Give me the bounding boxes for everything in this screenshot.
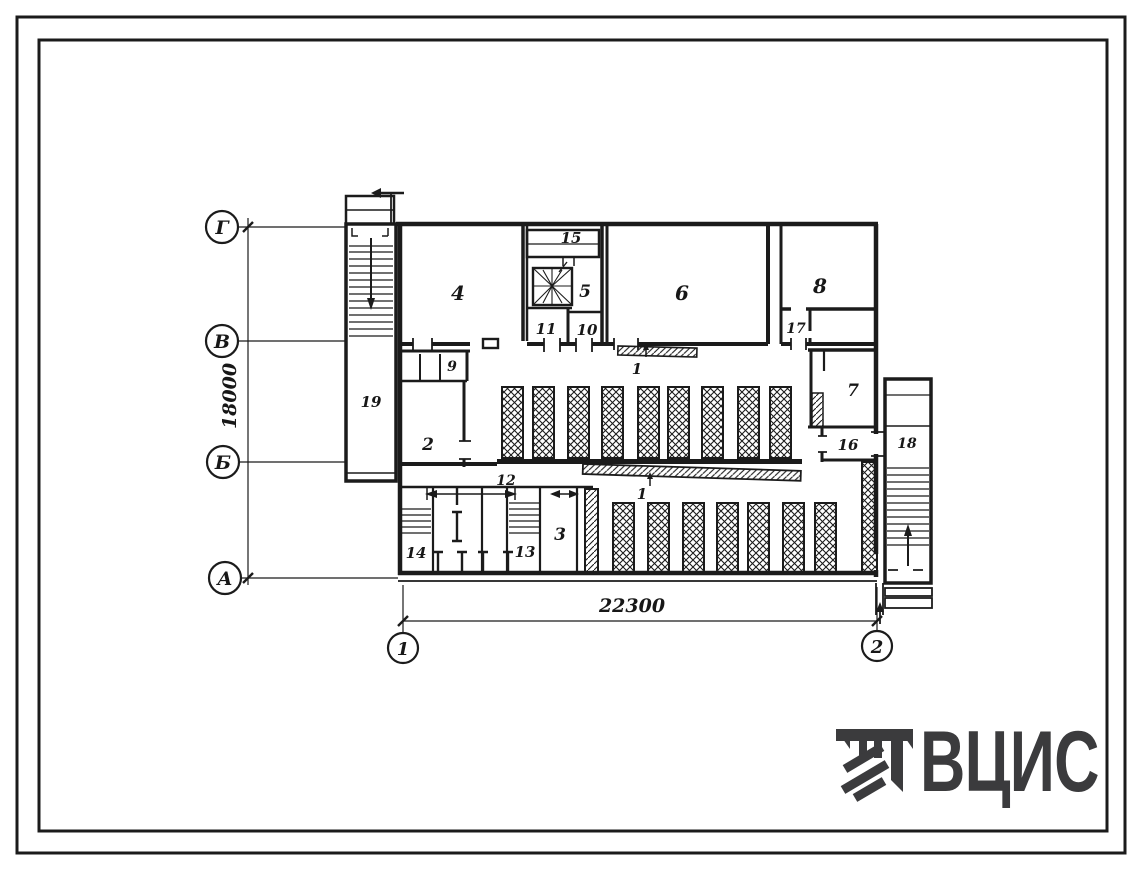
room-label-8: 8	[812, 274, 827, 298]
staircase-18	[876, 379, 932, 624]
dimension-horizontal: 22300	[598, 595, 665, 617]
issue-counter-small	[618, 346, 697, 357]
tall-rack-right	[862, 462, 877, 572]
axis-row-label-a: А	[215, 568, 232, 590]
vcis-logo-text: ВЦИС	[920, 713, 1099, 809]
staircase-19	[346, 188, 404, 481]
dimension-vertical: 18000	[219, 363, 241, 429]
room-label-19: 19	[361, 393, 382, 411]
floor-plan-drawing: Г В Б А 1 2 18000 22300 4 6 8 15 5 11 10…	[0, 0, 1139, 869]
room-label-6: 6	[675, 281, 689, 305]
axis-row-label-v: В	[213, 331, 230, 353]
axis-col-label-2: 2	[870, 637, 884, 658]
axis-row-label-g: Г	[214, 217, 230, 239]
pilaster	[483, 339, 498, 348]
room-label-1-upper: 1	[632, 360, 642, 378]
room-label-4: 4	[451, 281, 465, 305]
room-label-12: 12	[496, 473, 516, 489]
room-label-2: 2	[421, 435, 434, 455]
room-label-18: 18	[897, 436, 917, 452]
room-label-14: 14	[406, 544, 427, 562]
scanned-floor-plan-sheet: Г В Б А 1 2 18000 22300 4 6 8 15 5 11 10…	[0, 0, 1139, 869]
axis-col-label-1: 1	[397, 639, 410, 660]
room-label-3: 3	[554, 525, 566, 545]
corridor-12-arrows	[425, 488, 579, 500]
room-label-17: 17	[786, 321, 806, 337]
room-label-11: 11	[536, 320, 557, 338]
vcis-logo: ВЦИС	[836, 713, 1099, 809]
duct-hatch	[812, 393, 823, 427]
spiral-stair-5	[533, 262, 572, 305]
stair-treads-14	[402, 509, 431, 533]
labels: Г В Б А 1 2 18000 22300 4 6 8 15 5 11 10…	[213, 217, 917, 660]
axis-row-label-b: Б	[214, 452, 231, 474]
room-label-10: 10	[577, 321, 598, 339]
room-label-1-lower: 1	[637, 485, 647, 503]
room-label-5: 5	[579, 282, 591, 302]
door-leaves	[433, 487, 513, 572]
room-label-9: 9	[447, 359, 457, 375]
room-label-16: 16	[838, 436, 859, 454]
entrance-porch-right	[876, 583, 932, 624]
vcis-logo-icon	[836, 729, 913, 798]
room-label-7: 7	[847, 381, 859, 401]
ladder-rack	[585, 489, 598, 573]
issue-counter-long	[583, 464, 801, 481]
stair-treads-13	[509, 503, 539, 533]
rack-baseline	[497, 459, 802, 464]
room-label-15: 15	[561, 229, 582, 247]
room-label-13: 13	[515, 543, 536, 561]
